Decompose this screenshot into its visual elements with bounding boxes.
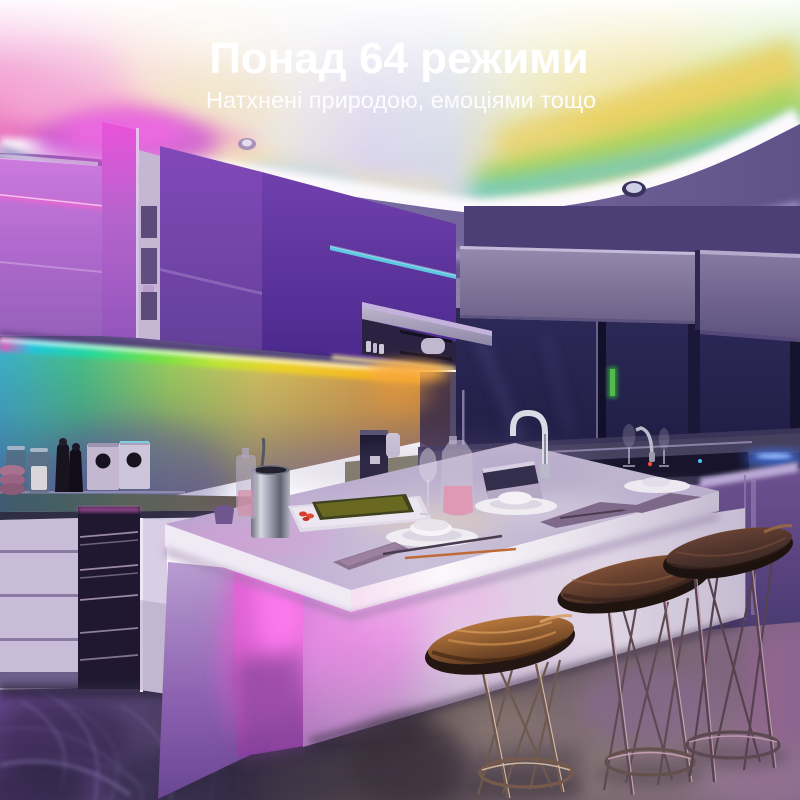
svg-text:Понад 64 режими: Понад 64 режими	[209, 34, 588, 83]
svg-text:Натхнені природою, емоціями то: Натхнені природою, емоціями тощо	[206, 87, 596, 113]
